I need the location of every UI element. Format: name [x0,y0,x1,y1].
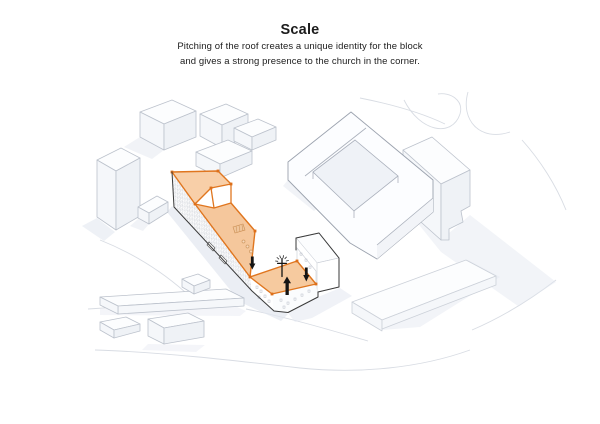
roof-vertex-node [249,276,252,279]
axonometric-diagram [0,0,600,424]
roof-vertex-node [296,260,299,263]
roof-vertex-node [254,230,257,233]
street-line [95,350,470,370]
slide: Scale Pitching of the roof creates a uni… [0,0,600,424]
roof-vertex-node [194,203,197,206]
roof-vertex-node [217,170,220,173]
street-line [100,240,185,292]
ray [285,257,287,259]
context-building [100,317,140,338]
tower-wall-grid [317,258,339,292]
context-building [97,148,140,230]
roof-vent [246,245,249,248]
roof-vertex-node [230,183,233,186]
context-building [148,313,204,344]
context-building [138,196,168,224]
ray [277,258,279,260]
roof-vent [250,250,253,253]
slab-shadow [142,344,205,352]
roof-vertex-node [271,293,274,296]
building-wall [116,158,140,230]
building-wall [97,160,116,230]
street-line [360,98,445,124]
ray [286,261,288,262]
ray [280,256,281,258]
street-line [466,92,510,134]
street-line [522,140,566,210]
roof-vent [242,240,245,243]
roof-vertex-node [210,187,213,190]
roof-vertex-node [315,283,318,286]
